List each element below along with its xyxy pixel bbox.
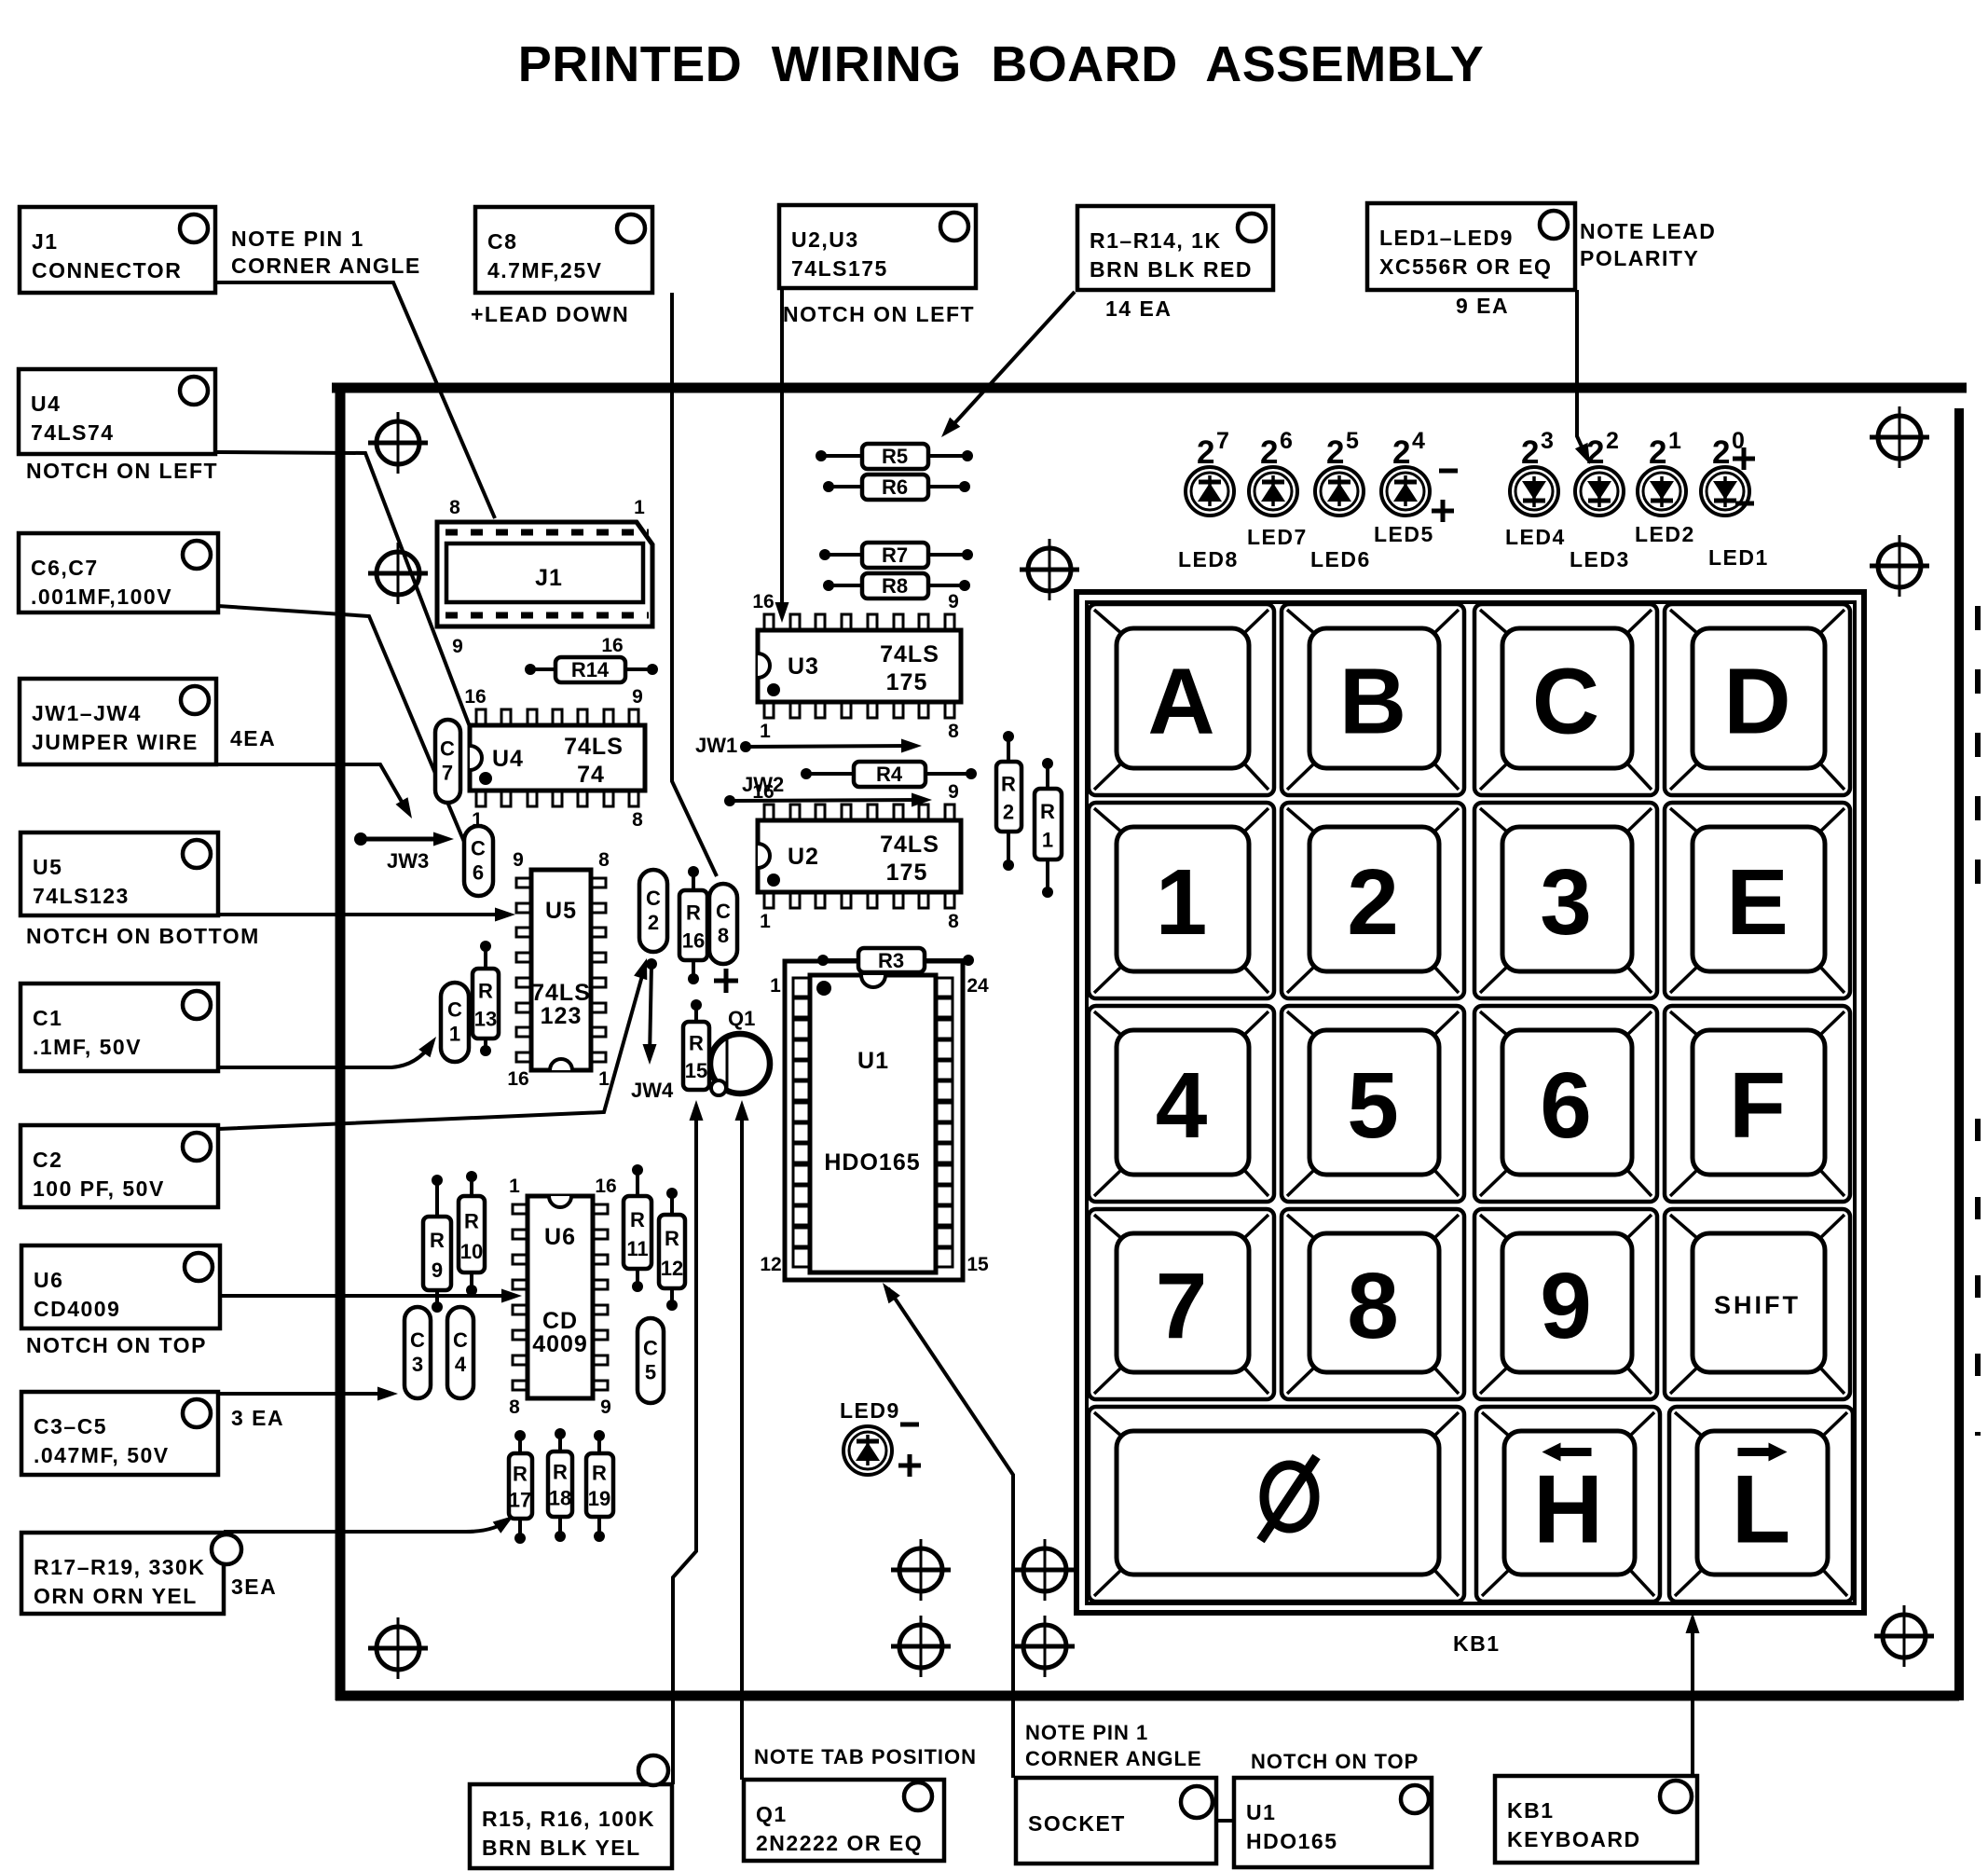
svg-text:123: 123	[541, 1003, 583, 1029]
svg-text:19: 19	[588, 1487, 610, 1510]
svg-text:J1: J1	[535, 565, 563, 591]
svg-text:16: 16	[601, 635, 623, 656]
svg-text:9: 9	[452, 636, 463, 657]
svg-text:Q1: Q1	[756, 1802, 788, 1826]
svg-text:12: 12	[661, 1257, 683, 1280]
svg-text:U2: U2	[788, 844, 819, 870]
svg-text:CD4009: CD4009	[34, 1297, 120, 1321]
svg-text:1: 1	[1156, 850, 1208, 955]
svg-text:74LS74: 74LS74	[31, 420, 115, 445]
svg-text:C: C	[471, 837, 486, 860]
svg-text:C8: C8	[487, 229, 517, 254]
svg-text:11: 11	[626, 1237, 648, 1260]
svg-text:7: 7	[442, 762, 453, 785]
svg-text:C: C	[453, 1328, 468, 1352]
svg-text:1: 1	[598, 1068, 610, 1090]
svg-text:R8: R8	[882, 574, 908, 598]
svg-text:LED1–LED9: LED1–LED9	[1379, 226, 1514, 250]
svg-text:4009: 4009	[532, 1331, 588, 1357]
svg-text:R5: R5	[882, 445, 908, 468]
svg-text:R7: R7	[882, 543, 908, 567]
svg-text:3EA: 3EA	[231, 1575, 277, 1599]
svg-text:C: C	[1532, 650, 1599, 754]
svg-text:R: R	[478, 980, 493, 1003]
svg-text:17: 17	[509, 1488, 531, 1511]
svg-text:74LS175: 74LS175	[791, 256, 888, 281]
svg-text:HDO165: HDO165	[824, 1149, 920, 1176]
svg-text:BRN BLK RED: BRN BLK RED	[1090, 257, 1253, 282]
svg-text:U1: U1	[857, 1048, 889, 1074]
svg-text:NOTCH ON TOP: NOTCH ON TOP	[26, 1333, 207, 1357]
svg-text:7: 7	[1156, 1254, 1208, 1358]
svg-text:BRN BLK YEL: BRN BLK YEL	[482, 1836, 641, 1860]
svg-text:13: 13	[474, 1008, 497, 1031]
svg-text:R: R	[464, 1209, 479, 1232]
svg-text:R: R	[1001, 773, 1016, 796]
svg-text:C: C	[646, 887, 661, 910]
svg-text:2: 2	[1326, 434, 1344, 471]
svg-text:1: 1	[760, 721, 771, 742]
svg-text:C: C	[716, 900, 731, 923]
svg-text:R6: R6	[882, 475, 908, 499]
svg-text:16: 16	[752, 591, 774, 612]
svg-text:8: 8	[449, 497, 460, 518]
svg-text:R: R	[553, 1460, 568, 1483]
svg-text:U6: U6	[34, 1268, 63, 1292]
svg-text:LED5: LED5	[1374, 522, 1434, 546]
svg-text:C6,C7: C6,C7	[31, 556, 99, 580]
svg-text:2: 2	[1003, 801, 1014, 824]
svg-text:1: 1	[449, 1023, 460, 1046]
svg-text:16: 16	[595, 1176, 616, 1197]
svg-text:SOCKET: SOCKET	[1028, 1811, 1126, 1836]
svg-text:+LEAD DOWN: +LEAD DOWN	[471, 302, 629, 326]
svg-text:KB1: KB1	[1507, 1798, 1555, 1823]
svg-text:12: 12	[760, 1254, 781, 1275]
svg-text:R15, R16, 100K: R15, R16, 100K	[482, 1807, 655, 1831]
svg-text:C: C	[410, 1328, 425, 1352]
svg-text:74LS: 74LS	[531, 980, 591, 1006]
svg-text:2: 2	[1197, 434, 1214, 471]
svg-text:2: 2	[1392, 434, 1410, 471]
svg-text:9: 9	[1540, 1254, 1592, 1358]
svg-text:100 PF, 50V: 100 PF, 50V	[33, 1176, 165, 1201]
svg-text:175: 175	[886, 860, 928, 886]
svg-text:74LS123: 74LS123	[33, 884, 130, 908]
svg-text:KEYBOARD: KEYBOARD	[1507, 1827, 1641, 1851]
svg-text:LED3: LED3	[1570, 547, 1630, 571]
svg-text:CORNER ANGLE: CORNER ANGLE	[231, 254, 421, 278]
svg-text:10: 10	[460, 1240, 483, 1263]
svg-text:3: 3	[412, 1353, 423, 1376]
svg-text:9: 9	[600, 1396, 611, 1418]
svg-text:ORN ORN YEL: ORN ORN YEL	[34, 1584, 198, 1608]
svg-text:JW1: JW1	[695, 734, 737, 757]
svg-text:KB1: KB1	[1453, 1631, 1501, 1656]
svg-text:CONNECTOR: CONNECTOR	[32, 258, 182, 282]
svg-text:R: R	[686, 901, 701, 925]
svg-text:LED4: LED4	[1505, 525, 1566, 549]
svg-text:4: 4	[1412, 428, 1425, 454]
svg-text:74LS: 74LS	[880, 832, 939, 858]
svg-text:16: 16	[507, 1068, 528, 1090]
svg-text:L: L	[1732, 1456, 1791, 1564]
svg-text:6: 6	[1540, 1053, 1592, 1158]
svg-text:2: 2	[1260, 434, 1278, 471]
svg-text:POLARITY: POLARITY	[1580, 246, 1699, 270]
svg-text:1: 1	[1042, 828, 1053, 851]
svg-text:E: E	[1726, 850, 1789, 955]
svg-text:U4: U4	[31, 392, 61, 416]
svg-text:LED9: LED9	[840, 1398, 900, 1423]
svg-text:2N2222 OR EQ: 2N2222 OR EQ	[756, 1831, 923, 1855]
svg-text:4: 4	[1156, 1053, 1208, 1158]
svg-text:3 EA: 3 EA	[231, 1406, 284, 1430]
svg-text:14 EA: 14 EA	[1105, 296, 1172, 321]
svg-text:C3–C5: C3–C5	[34, 1414, 107, 1438]
svg-text:J1: J1	[32, 229, 59, 254]
svg-text:175: 175	[886, 669, 928, 695]
svg-text:24: 24	[967, 975, 989, 997]
svg-text:9: 9	[948, 591, 959, 612]
svg-text:U6: U6	[544, 1224, 576, 1250]
svg-text:2: 2	[1712, 434, 1730, 471]
svg-text:4EA: 4EA	[230, 726, 276, 750]
svg-text:NOTE LEAD: NOTE LEAD	[1580, 219, 1716, 243]
svg-text:15: 15	[685, 1059, 707, 1082]
svg-text:LED1: LED1	[1708, 545, 1769, 570]
svg-text:16: 16	[682, 929, 705, 953]
svg-text:D: D	[1723, 650, 1790, 754]
svg-text:4.7MF,25V: 4.7MF,25V	[487, 258, 602, 282]
svg-text:NOTE PIN 1: NOTE PIN 1	[231, 227, 364, 251]
svg-text:LED6: LED6	[1310, 547, 1371, 571]
svg-text:3: 3	[1541, 428, 1554, 454]
svg-text:74: 74	[577, 762, 605, 788]
svg-text:SHIFT: SHIFT	[1714, 1291, 1801, 1319]
svg-text:NOTCH ON BOTTOM: NOTCH ON BOTTOM	[26, 924, 260, 948]
svg-text:XC556R OR EQ: XC556R OR EQ	[1379, 255, 1552, 279]
svg-text:R: R	[630, 1208, 645, 1231]
svg-text:NOTCH ON LEFT: NOTCH ON LEFT	[26, 459, 218, 483]
svg-text:9: 9	[948, 781, 959, 803]
svg-text:R17–R19, 330K: R17–R19, 330K	[34, 1555, 205, 1579]
svg-text:LED2: LED2	[1635, 522, 1695, 546]
svg-text:LED8: LED8	[1178, 547, 1239, 571]
svg-text:CD: CD	[542, 1308, 578, 1334]
svg-text:R3: R3	[878, 949, 904, 972]
svg-text:2: 2	[1586, 434, 1604, 471]
svg-text:NOTE PIN 1: NOTE PIN 1	[1025, 1721, 1148, 1744]
svg-text:NOTCH ON TOP: NOTCH ON TOP	[1251, 1750, 1419, 1773]
svg-text:5: 5	[645, 1361, 656, 1384]
svg-text:16: 16	[464, 686, 486, 708]
svg-text:74LS: 74LS	[880, 641, 939, 667]
svg-text:1: 1	[634, 497, 645, 518]
svg-text:9: 9	[513, 849, 524, 871]
svg-text:U5: U5	[545, 898, 577, 924]
svg-text:9 EA: 9 EA	[1456, 294, 1509, 318]
svg-text:8: 8	[948, 911, 959, 932]
svg-text:1: 1	[760, 911, 771, 932]
svg-text:18: 18	[549, 1486, 571, 1509]
svg-text:JW1–JW4: JW1–JW4	[32, 701, 142, 725]
svg-text:C1: C1	[33, 1006, 62, 1030]
svg-text:A: A	[1147, 650, 1214, 754]
svg-text:9: 9	[432, 1259, 443, 1282]
svg-text:U4: U4	[492, 746, 524, 772]
svg-text:15: 15	[967, 1254, 989, 1275]
svg-text:C: C	[643, 1337, 658, 1360]
svg-text:2: 2	[1347, 850, 1399, 955]
svg-text:6: 6	[473, 861, 484, 885]
svg-text:R1–R14, 1K: R1–R14, 1K	[1090, 228, 1222, 253]
svg-text:C: C	[447, 998, 462, 1022]
svg-text:8: 8	[509, 1396, 520, 1418]
svg-text:9: 9	[632, 686, 643, 708]
svg-text:R: R	[689, 1032, 704, 1055]
svg-text:7: 7	[1216, 428, 1229, 454]
svg-text:R: R	[592, 1462, 607, 1485]
svg-text:JW2: JW2	[742, 773, 784, 796]
svg-text:3: 3	[1540, 850, 1592, 955]
svg-text:R: R	[1040, 800, 1055, 823]
svg-text:5: 5	[1346, 428, 1359, 454]
svg-text:2: 2	[648, 911, 659, 934]
svg-text:1: 1	[770, 975, 781, 997]
svg-text:R: R	[430, 1229, 445, 1252]
svg-text:C2: C2	[33, 1148, 62, 1172]
svg-text:2: 2	[1521, 434, 1539, 471]
svg-text:8: 8	[598, 849, 610, 871]
svg-text:HDO165: HDO165	[1246, 1829, 1337, 1853]
svg-text:8: 8	[1347, 1254, 1399, 1358]
svg-text:U1: U1	[1246, 1800, 1276, 1824]
svg-text:R: R	[513, 1462, 528, 1485]
svg-text:C: C	[440, 737, 455, 761]
svg-text:.047MF, 50V: .047MF, 50V	[34, 1443, 170, 1467]
svg-text:2: 2	[1606, 428, 1619, 454]
svg-text:74LS: 74LS	[564, 734, 624, 760]
svg-text:NOTCH ON LEFT: NOTCH ON LEFT	[783, 302, 975, 326]
svg-text:B: B	[1339, 650, 1406, 754]
svg-text:R4: R4	[876, 763, 903, 786]
svg-text:8: 8	[948, 721, 959, 742]
svg-text:JW3: JW3	[387, 849, 429, 873]
svg-text:U2,U3: U2,U3	[791, 227, 859, 252]
svg-text:6: 6	[1280, 428, 1293, 454]
svg-text:H: H	[1533, 1456, 1603, 1564]
svg-text:Q1: Q1	[728, 1007, 755, 1030]
svg-text:.001MF,100V: .001MF,100V	[31, 585, 172, 609]
svg-text:CORNER ANGLE: CORNER ANGLE	[1025, 1747, 1202, 1770]
svg-text:JUMPER WIRE: JUMPER WIRE	[32, 730, 199, 754]
svg-text:U5: U5	[33, 855, 62, 879]
svg-text:LED7: LED7	[1247, 525, 1308, 549]
svg-text:U3: U3	[788, 653, 819, 680]
svg-text:5: 5	[1347, 1053, 1399, 1158]
svg-text:F: F	[1729, 1053, 1786, 1158]
svg-text:JW4: JW4	[631, 1079, 674, 1102]
svg-text:8: 8	[718, 924, 729, 947]
svg-text:R14: R14	[571, 658, 610, 681]
svg-text:R: R	[665, 1227, 679, 1250]
svg-text:1: 1	[509, 1176, 520, 1197]
svg-text:PRINTED WIRING BOARD ASSEMBLY: PRINTED WIRING BOARD ASSEMBLY	[518, 36, 1485, 92]
svg-text:1: 1	[1668, 428, 1681, 454]
svg-text:NOTE TAB POSITION: NOTE TAB POSITION	[754, 1745, 977, 1768]
svg-text:4: 4	[455, 1353, 467, 1376]
svg-text:8: 8	[632, 809, 643, 831]
svg-text:.1MF, 50V: .1MF, 50V	[33, 1035, 142, 1059]
svg-text:2: 2	[1649, 434, 1666, 471]
